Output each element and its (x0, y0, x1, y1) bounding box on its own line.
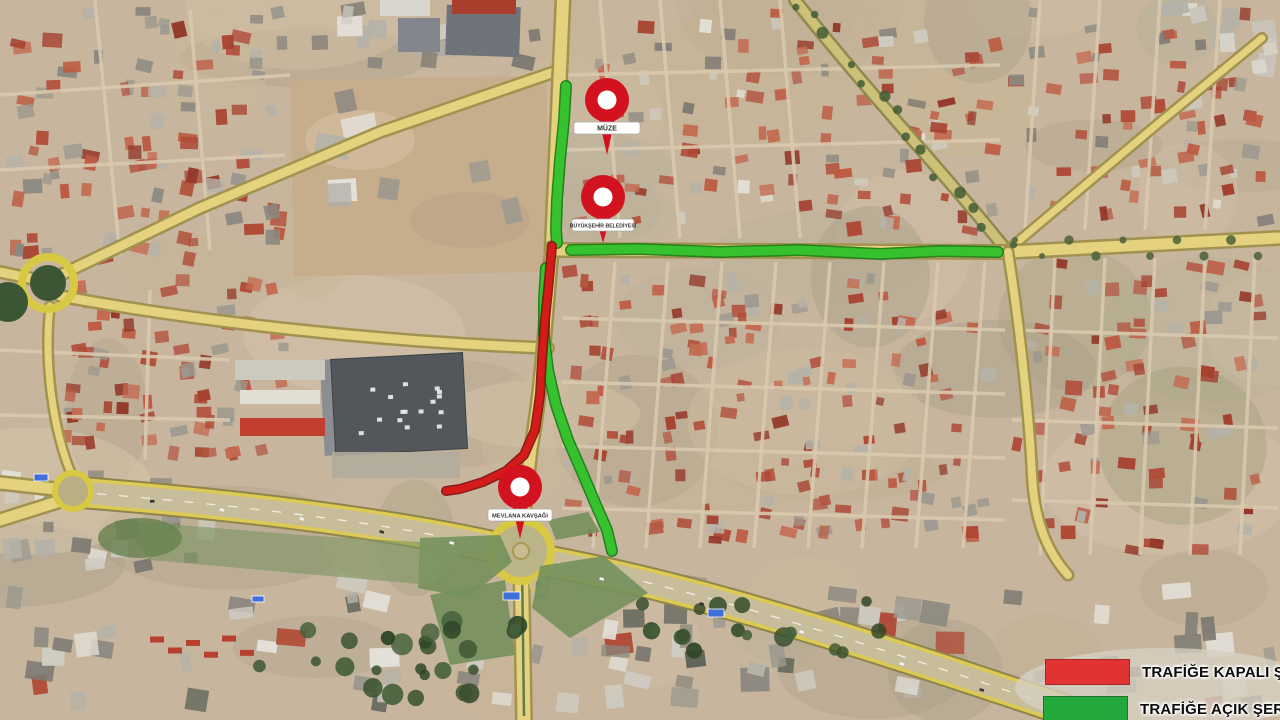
satellite-base (0, 0, 1280, 720)
traffic-plan-map: MÜZEBÜYÜKŞEHİR BELEDİYESİMEVLANA KAVŞAĞI… (0, 0, 1280, 720)
route-open-east (571, 249, 998, 254)
satellite-map: MÜZEBÜYÜKŞEHİR BELEDİYESİMEVLANA KAVŞAĞI (0, 0, 1280, 720)
pin-muze-label: MÜZE (597, 124, 617, 133)
pin-belediye-label: BÜYÜKŞEHİR BELEDİYESİ (570, 223, 637, 230)
pin-kavsak-label: MEVLANA KAVŞAĞI (492, 512, 548, 520)
